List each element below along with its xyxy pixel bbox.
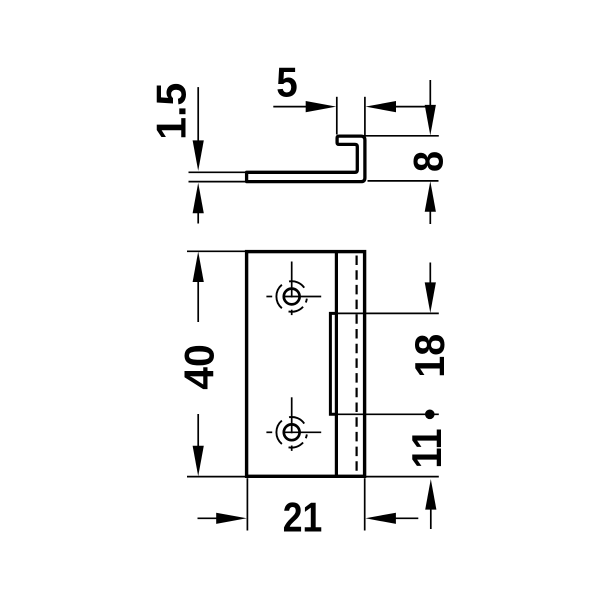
svg-text:18: 18 bbox=[406, 334, 453, 378]
svg-text:40: 40 bbox=[175, 344, 223, 389]
svg-text:5: 5 bbox=[276, 58, 297, 106]
svg-text:1.5: 1.5 bbox=[147, 83, 194, 140]
svg-text:11: 11 bbox=[404, 429, 450, 469]
svg-text:8: 8 bbox=[406, 151, 452, 172]
svg-text:21: 21 bbox=[283, 495, 323, 541]
